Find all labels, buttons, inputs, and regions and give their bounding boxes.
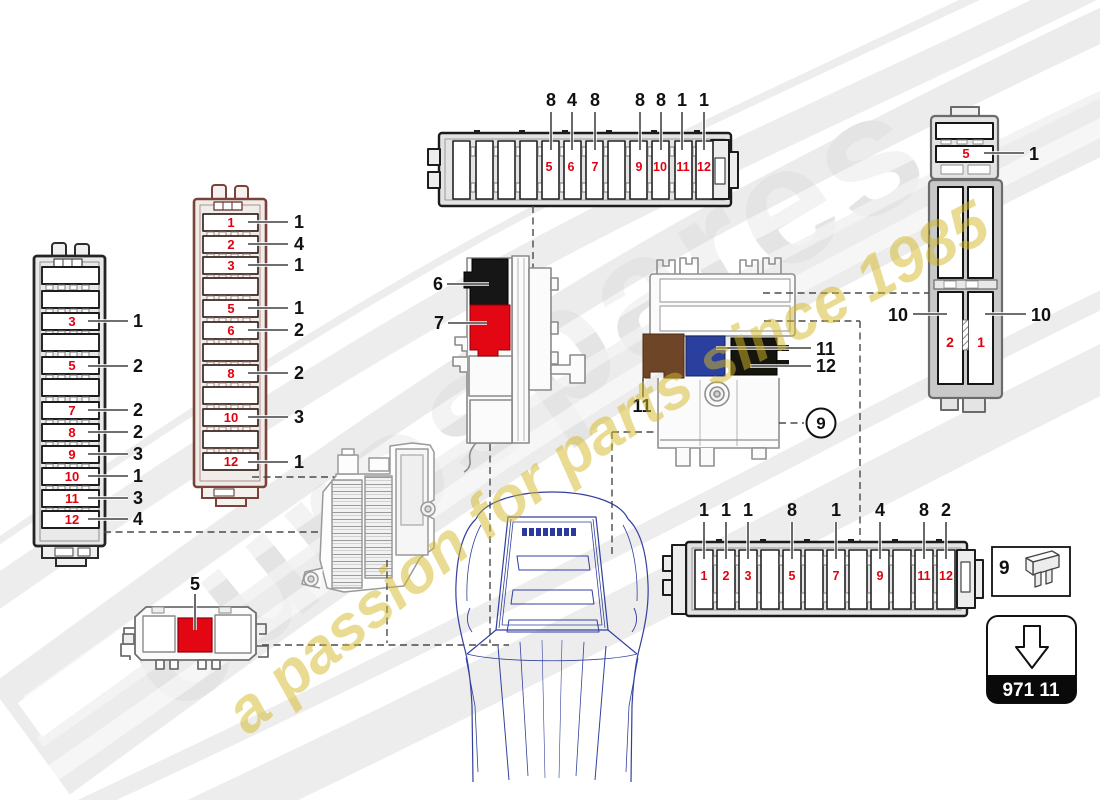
svg-text:3: 3	[294, 407, 304, 427]
svg-text:1: 1	[701, 569, 708, 583]
svg-text:971 11: 971 11	[1002, 680, 1059, 701]
svg-text:12: 12	[224, 454, 238, 469]
svg-text:8: 8	[546, 90, 556, 110]
svg-text:11: 11	[676, 160, 689, 174]
svg-text:3: 3	[745, 569, 752, 583]
svg-text:1: 1	[699, 500, 709, 520]
svg-text:1: 1	[743, 500, 753, 520]
svg-text:1: 1	[294, 298, 304, 318]
svg-text:1: 1	[133, 311, 143, 331]
svg-text:4: 4	[567, 90, 577, 110]
svg-text:5: 5	[227, 301, 234, 316]
svg-text:12: 12	[816, 356, 836, 376]
svg-text:3: 3	[133, 488, 143, 508]
svg-text:9: 9	[636, 160, 643, 174]
svg-text:2: 2	[133, 400, 143, 420]
svg-text:6: 6	[227, 323, 234, 338]
svg-text:9: 9	[877, 569, 884, 583]
svg-text:8: 8	[68, 425, 75, 440]
svg-text:2: 2	[227, 237, 234, 252]
svg-text:3: 3	[227, 258, 234, 273]
svg-text:12: 12	[939, 569, 953, 583]
svg-text:4: 4	[133, 509, 143, 529]
svg-text:7: 7	[434, 313, 444, 333]
svg-text:10: 10	[1031, 305, 1051, 325]
svg-text:10: 10	[224, 410, 238, 425]
svg-text:1: 1	[699, 90, 709, 110]
svg-text:5: 5	[546, 160, 553, 174]
svg-text:9: 9	[68, 447, 75, 462]
svg-text:2: 2	[723, 569, 730, 583]
svg-text:12: 12	[697, 160, 711, 174]
svg-text:2: 2	[294, 320, 304, 340]
svg-text:1: 1	[133, 466, 143, 486]
svg-text:5: 5	[789, 569, 796, 583]
svg-text:2: 2	[294, 363, 304, 383]
svg-text:7: 7	[833, 569, 840, 583]
svg-text:3: 3	[133, 444, 143, 464]
svg-text:2: 2	[133, 356, 143, 376]
svg-text:2: 2	[133, 422, 143, 442]
svg-text:4: 4	[294, 234, 304, 254]
svg-text:5: 5	[962, 146, 969, 161]
svg-text:9: 9	[999, 558, 1010, 579]
svg-text:1: 1	[227, 215, 234, 230]
svg-text:8: 8	[919, 500, 929, 520]
svg-text:4: 4	[875, 500, 885, 520]
svg-text:1: 1	[294, 212, 304, 232]
svg-text:11: 11	[65, 491, 79, 506]
svg-text:1: 1	[1029, 144, 1039, 164]
svg-text:1: 1	[677, 90, 687, 110]
svg-text:5: 5	[68, 358, 75, 373]
svg-text:5: 5	[190, 574, 200, 594]
svg-text:11: 11	[917, 569, 930, 583]
svg-text:2: 2	[946, 334, 954, 350]
svg-text:8: 8	[656, 90, 666, 110]
svg-text:7: 7	[592, 160, 599, 174]
svg-text:12: 12	[65, 512, 79, 527]
svg-text:10: 10	[653, 160, 667, 174]
svg-text:8: 8	[635, 90, 645, 110]
svg-text:7: 7	[68, 403, 75, 418]
svg-text:2: 2	[941, 500, 951, 520]
svg-text:9: 9	[816, 414, 825, 433]
svg-text:8: 8	[787, 500, 797, 520]
svg-text:1: 1	[831, 500, 841, 520]
svg-text:1: 1	[721, 500, 731, 520]
svg-text:1: 1	[977, 334, 985, 350]
svg-text:10: 10	[65, 469, 79, 484]
svg-text:6: 6	[568, 160, 575, 174]
svg-text:1: 1	[294, 452, 304, 472]
svg-text:1: 1	[294, 255, 304, 275]
svg-text:6: 6	[433, 274, 443, 294]
svg-text:3: 3	[68, 314, 75, 329]
svg-text:8: 8	[590, 90, 600, 110]
svg-text:8: 8	[227, 366, 234, 381]
